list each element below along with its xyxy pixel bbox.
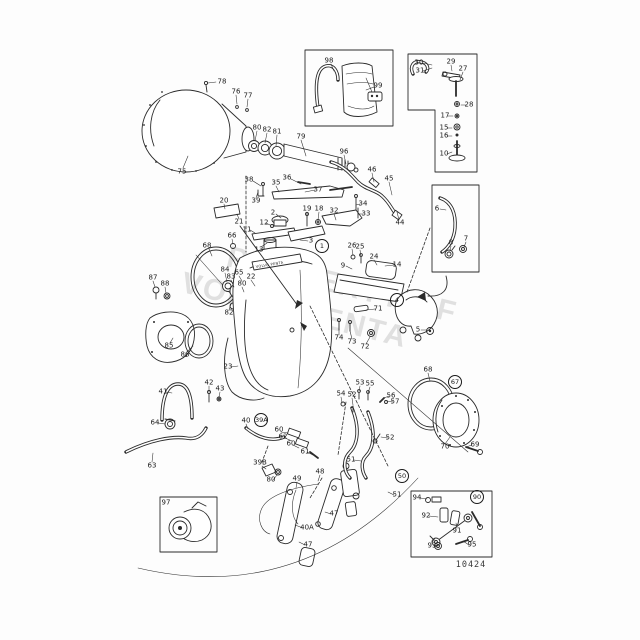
hose-6-inset bbox=[440, 198, 467, 258]
part-label-39A: 39A bbox=[254, 413, 268, 427]
part-label-17: 17 bbox=[441, 113, 450, 120]
pump-inset bbox=[169, 502, 211, 542]
part-label-55: 55 bbox=[366, 381, 375, 388]
part-label-74: 74 bbox=[335, 335, 344, 342]
part-label-76: 76 bbox=[232, 89, 241, 96]
part-label-96: 96 bbox=[340, 149, 349, 156]
parts-diagram: PROPERTY OF VOLVO PENTA bbox=[0, 0, 640, 640]
part-label-99: 99 bbox=[374, 83, 383, 90]
part-label-41: 41 bbox=[159, 389, 168, 396]
part-label-61: 61 bbox=[301, 449, 310, 456]
part-label-40A: 40A bbox=[300, 525, 314, 532]
part-label-92: 92 bbox=[422, 513, 431, 520]
part-label-31: 31 bbox=[416, 68, 425, 75]
part-label-36: 36 bbox=[283, 175, 292, 182]
part-label-3: 3 bbox=[309, 238, 313, 245]
part-label-53: 53 bbox=[356, 380, 365, 387]
part-label-60: 60 bbox=[287, 441, 296, 448]
part-label-54: 54 bbox=[337, 391, 346, 398]
part-label-30: 30 bbox=[415, 60, 424, 67]
part-label-97: 97 bbox=[162, 500, 171, 507]
part-label-98: 98 bbox=[325, 58, 334, 65]
part-label-23: 23 bbox=[224, 364, 233, 371]
part-label-29: 29 bbox=[447, 59, 456, 66]
part-label-93: 93 bbox=[428, 543, 437, 550]
part-label-63: 63 bbox=[148, 463, 157, 470]
part-label-72: 72 bbox=[361, 344, 370, 351]
part-label-16: 16 bbox=[440, 133, 449, 140]
transom-brackets bbox=[260, 390, 388, 568]
part-label-81: 81 bbox=[273, 129, 282, 136]
part-label-77: 77 bbox=[244, 93, 253, 100]
part-label-42: 42 bbox=[205, 380, 214, 387]
part-label-51: 51 bbox=[393, 492, 402, 499]
part-label-40: 40 bbox=[242, 418, 251, 425]
part-label-91: 91 bbox=[453, 528, 462, 535]
part-label-90: 90 bbox=[470, 490, 484, 504]
part-label-82: 82 bbox=[225, 310, 234, 317]
part-label-73: 73 bbox=[348, 339, 357, 346]
part-label-75: 75 bbox=[178, 169, 187, 176]
part-label-82: 82 bbox=[263, 127, 272, 134]
part-label-18: 18 bbox=[315, 206, 324, 213]
part-label-22: 22 bbox=[247, 274, 256, 281]
part-label-69: 69 bbox=[471, 442, 480, 449]
part-label-6: 6 bbox=[435, 206, 439, 213]
part-label-35: 35 bbox=[272, 180, 281, 187]
part-label-43: 43 bbox=[216, 386, 225, 393]
part-label-88: 88 bbox=[161, 281, 170, 288]
part-label-39B: 39B bbox=[253, 460, 267, 467]
part-label-85: 85 bbox=[165, 343, 174, 350]
part-label-67: 67 bbox=[448, 375, 462, 389]
part-label-80: 80 bbox=[253, 125, 262, 132]
part-label-39: 39 bbox=[252, 198, 261, 205]
part-label-94: 94 bbox=[413, 495, 422, 502]
drawing-number: 10424 bbox=[446, 560, 496, 570]
part-label-13: 13 bbox=[255, 247, 264, 254]
part-label-21: 21 bbox=[235, 219, 244, 226]
part-label-5: 5 bbox=[416, 327, 420, 334]
part-label-68: 68 bbox=[203, 243, 212, 250]
part-label-95: 95 bbox=[468, 542, 477, 549]
part-label-15: 15 bbox=[440, 125, 449, 132]
part-label-37: 37 bbox=[314, 187, 323, 194]
part-label-66: 66 bbox=[228, 233, 237, 240]
part-label-47: 47 bbox=[330, 511, 339, 518]
part-label-20: 20 bbox=[220, 198, 229, 205]
part-label-80: 80 bbox=[238, 281, 247, 288]
part-label-19: 19 bbox=[303, 206, 312, 213]
part-label-34: 34 bbox=[359, 201, 368, 208]
part-label-7: 7 bbox=[464, 236, 468, 243]
part-label-48: 48 bbox=[316, 469, 325, 476]
part-label-71: 71 bbox=[374, 306, 383, 313]
part-label-65: 65 bbox=[235, 270, 244, 277]
part-label-38: 38 bbox=[245, 177, 254, 184]
part-label-52: 52 bbox=[386, 435, 395, 442]
part-label-8: 8 bbox=[449, 240, 453, 247]
part-label-64: 64 bbox=[151, 420, 160, 427]
part-label-32: 32 bbox=[330, 208, 339, 215]
part-label-83: 83 bbox=[227, 274, 236, 281]
part-label-24: 24 bbox=[370, 254, 379, 261]
part-label-25: 25 bbox=[356, 244, 365, 251]
part-label-10: 10 bbox=[440, 151, 449, 158]
part-label-4: 4 bbox=[390, 293, 404, 307]
part-label-78: 78 bbox=[218, 79, 227, 86]
hose-kit-inset bbox=[313, 63, 382, 117]
part-label-12: 12 bbox=[260, 220, 269, 227]
part-label-44: 44 bbox=[396, 220, 405, 227]
part-label-70: 70 bbox=[441, 444, 450, 451]
part-label-68: 68 bbox=[424, 367, 433, 374]
part-label-45: 45 bbox=[385, 176, 394, 183]
part-label-9: 9 bbox=[341, 263, 345, 270]
part-label-87: 87 bbox=[149, 275, 158, 282]
part-label-49: 49 bbox=[293, 476, 302, 483]
part-label-14: 14 bbox=[393, 262, 402, 269]
part-label-46: 46 bbox=[368, 167, 377, 174]
part-label-2: 2 bbox=[271, 210, 275, 217]
part-label-28: 28 bbox=[465, 102, 474, 109]
part-label-33: 33 bbox=[362, 211, 371, 218]
part-label-27: 27 bbox=[459, 66, 468, 73]
part-label-57: 57 bbox=[391, 399, 400, 406]
part-label-50: 50 bbox=[395, 469, 409, 483]
part-label-52: 52 bbox=[348, 392, 357, 399]
part-label-79: 79 bbox=[297, 134, 306, 141]
diagram-artwork: VOLVO PENTA bbox=[0, 0, 640, 640]
part-label-1: 1 bbox=[315, 239, 329, 253]
part-label-80: 80 bbox=[267, 477, 276, 484]
part-label-47: 47 bbox=[304, 542, 313, 549]
part-label-11: 11 bbox=[243, 227, 252, 234]
part-label-86: 86 bbox=[181, 352, 190, 359]
part-label-51: 51 bbox=[347, 457, 356, 464]
shift-unit-inset bbox=[412, 62, 465, 161]
